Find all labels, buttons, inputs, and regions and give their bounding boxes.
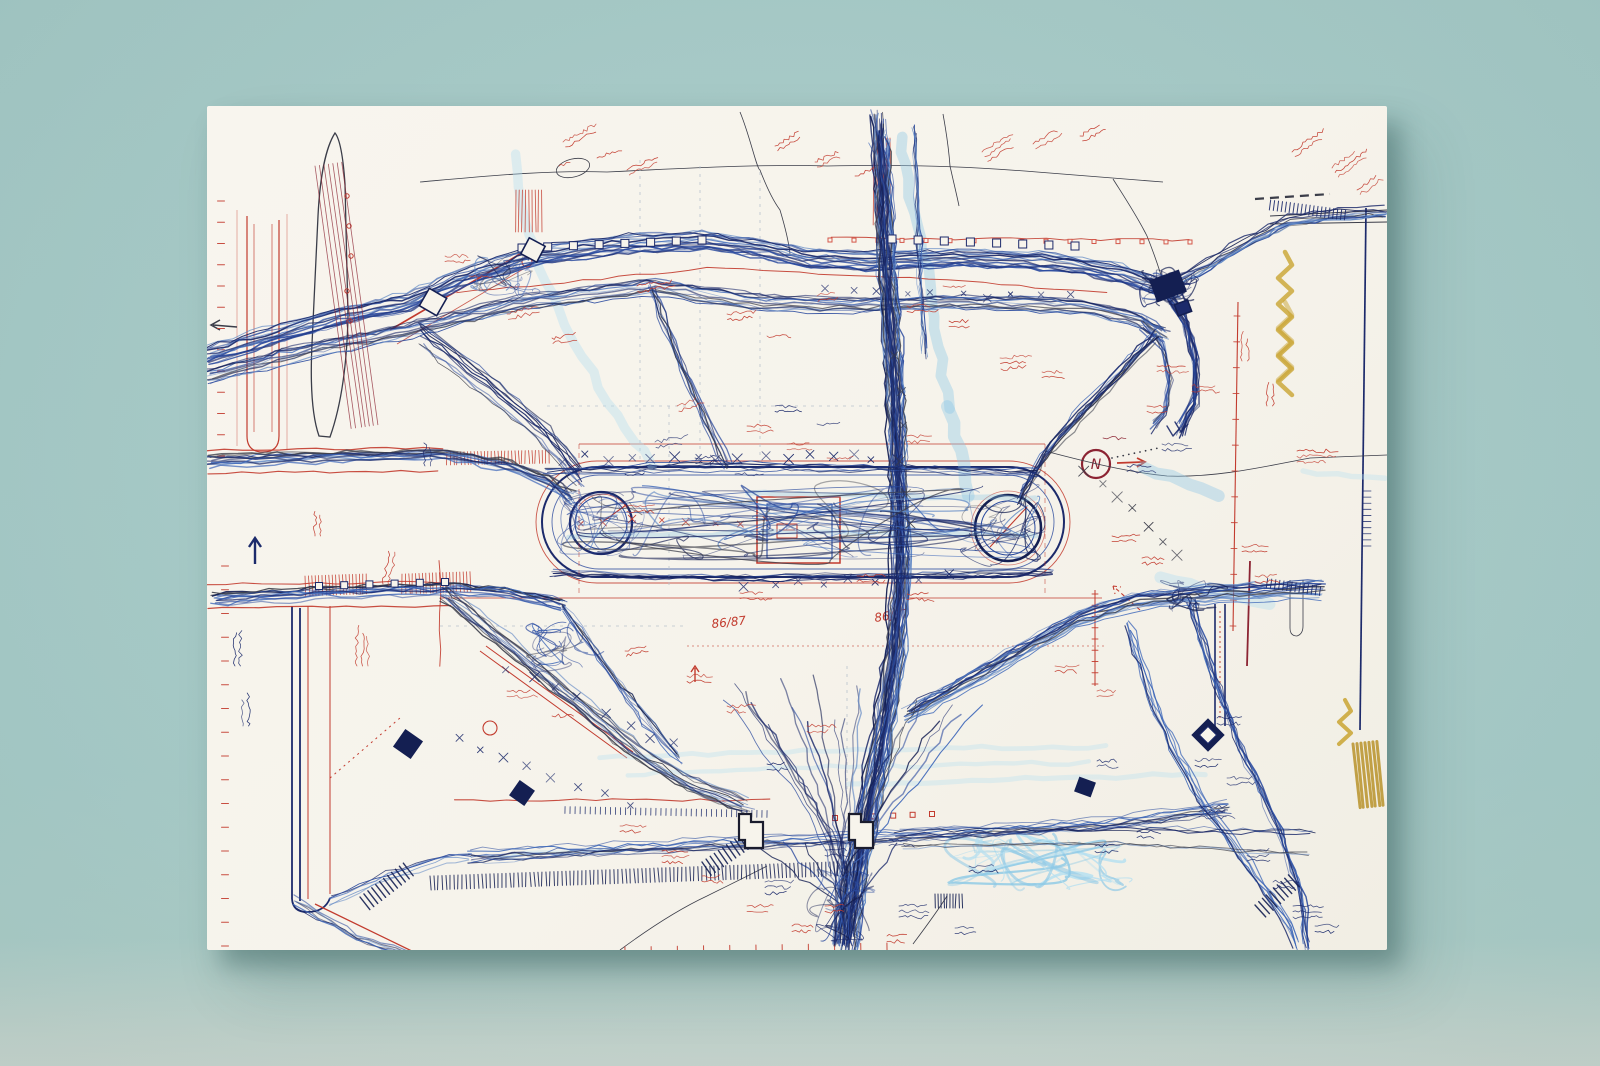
handwriting-scribble bbox=[1291, 128, 1328, 158]
ink-stroke bbox=[434, 876, 435, 890]
flow-line bbox=[420, 325, 582, 472]
x-mark bbox=[629, 454, 636, 461]
flow-line bbox=[563, 611, 682, 763]
flow-line bbox=[207, 280, 1162, 372]
ink-stroke bbox=[722, 866, 723, 880]
handwriting-scribble bbox=[1042, 370, 1064, 378]
ink-stroke bbox=[981, 132, 1013, 154]
handwriting-scribble bbox=[1297, 449, 1338, 463]
ink-stroke bbox=[698, 867, 699, 881]
ink-stroke bbox=[687, 680, 711, 683]
ink-stroke bbox=[1247, 854, 1269, 857]
ink-stroke bbox=[681, 867, 682, 881]
x-mark bbox=[873, 288, 880, 295]
handwriting-scribble bbox=[907, 592, 934, 601]
ink-stroke bbox=[907, 435, 932, 438]
ink-stroke bbox=[857, 580, 885, 583]
handwriting-scribble bbox=[943, 285, 965, 287]
handwriting-scribble bbox=[596, 148, 621, 160]
handwriting-scribble bbox=[1112, 534, 1140, 541]
flow-line bbox=[1166, 214, 1383, 294]
x-mark bbox=[851, 287, 857, 293]
ink-stroke bbox=[642, 869, 643, 883]
ink-stroke bbox=[529, 451, 530, 464]
kerb-tooth bbox=[930, 812, 935, 817]
x-mark bbox=[546, 774, 554, 782]
ink-stroke bbox=[1157, 370, 1189, 373]
x-mark bbox=[850, 450, 859, 459]
ink-stroke bbox=[655, 434, 689, 443]
x-mark bbox=[784, 454, 794, 464]
flow-line bbox=[564, 607, 677, 753]
ink-stroke bbox=[445, 254, 468, 257]
zigzag-mark bbox=[1278, 302, 1292, 380]
ink-stroke bbox=[1242, 545, 1268, 548]
ink-stroke bbox=[490, 874, 491, 888]
ink-stroke bbox=[749, 865, 750, 879]
kerb-tooth bbox=[852, 238, 856, 242]
ink-stroke bbox=[1297, 449, 1338, 453]
ink-stroke bbox=[727, 310, 756, 316]
ink-stroke bbox=[454, 875, 455, 889]
photo-backdrop: N 86/87 86/87 bbox=[0, 0, 1600, 1066]
flow-line bbox=[908, 598, 1321, 723]
ink-stroke bbox=[1097, 690, 1116, 693]
ink-stroke bbox=[1079, 124, 1100, 137]
tick-mark bbox=[1281, 202, 1282, 212]
highlighter-wash bbox=[947, 406, 968, 496]
ink-stroke bbox=[725, 866, 726, 880]
ink-stroke bbox=[747, 911, 768, 912]
ink-stroke bbox=[807, 730, 828, 733]
hatch-block bbox=[1353, 741, 1384, 807]
handwriting-scribble bbox=[747, 904, 773, 912]
ink-stroke bbox=[782, 864, 783, 878]
ink-stroke bbox=[1042, 370, 1062, 373]
ink-stroke bbox=[646, 868, 647, 882]
flow-line bbox=[1019, 339, 1154, 504]
handwriting-scribble bbox=[562, 123, 599, 149]
ink-stroke bbox=[775, 405, 796, 408]
ink-stroke bbox=[802, 863, 803, 877]
building-footprint bbox=[394, 730, 422, 758]
ink-stroke bbox=[907, 440, 930, 443]
ink-stroke bbox=[598, 870, 599, 884]
ink-stroke bbox=[955, 927, 974, 929]
handwriting-scribble bbox=[949, 319, 969, 328]
ink-stroke bbox=[546, 872, 547, 886]
ink-stroke bbox=[1242, 551, 1267, 552]
ink-stroke bbox=[1356, 175, 1377, 191]
ink-stroke bbox=[821, 862, 822, 876]
tick-mark bbox=[1301, 204, 1302, 214]
ink-stroke bbox=[1142, 557, 1164, 560]
x-mark bbox=[628, 803, 634, 809]
dotted-leader bbox=[1128, 454, 1130, 456]
tick-mark bbox=[1269, 200, 1270, 210]
tick-mark bbox=[1299, 583, 1300, 592]
ink-stroke bbox=[774, 131, 800, 148]
ink-stroke bbox=[1241, 331, 1244, 361]
handwriting-scribble bbox=[1097, 759, 1118, 768]
kerb-tooth bbox=[442, 579, 449, 586]
x-mark bbox=[1172, 550, 1182, 560]
ink-stroke bbox=[507, 695, 537, 699]
ink-stroke bbox=[946, 894, 947, 908]
ink-stroke bbox=[507, 690, 530, 693]
ink-stroke bbox=[1272, 384, 1275, 406]
ink-stroke bbox=[501, 873, 502, 887]
ink-stroke bbox=[355, 625, 359, 666]
kerb-tooth bbox=[993, 239, 1001, 247]
x-mark bbox=[646, 734, 655, 743]
ink-stroke bbox=[1157, 365, 1185, 367]
ink-stroke bbox=[899, 915, 928, 919]
dotted-leader bbox=[1139, 451, 1141, 453]
ink-stroke bbox=[662, 868, 663, 882]
ink-stroke bbox=[814, 150, 838, 164]
dotted-leader bbox=[1111, 457, 1113, 459]
ink-stroke bbox=[1315, 930, 1334, 933]
handwriting-scribble bbox=[1242, 545, 1268, 553]
ink-stroke bbox=[1331, 150, 1356, 169]
ink-stroke bbox=[955, 932, 976, 935]
ink-stroke bbox=[610, 870, 611, 884]
ink-stroke bbox=[1112, 540, 1136, 542]
flow-line bbox=[210, 279, 1165, 375]
ink-stroke bbox=[775, 410, 802, 412]
kerb-tooth bbox=[647, 238, 655, 246]
ink-stroke bbox=[539, 450, 540, 463]
year-annotation-left: 86/87 bbox=[711, 613, 747, 631]
x-mark bbox=[906, 292, 910, 296]
ink-stroke bbox=[1227, 776, 1252, 779]
ink-stroke bbox=[319, 165, 357, 428]
ink-stroke bbox=[525, 451, 526, 464]
highlighter-wash bbox=[901, 137, 950, 409]
ink-stroke bbox=[538, 872, 539, 886]
ink-stroke bbox=[626, 869, 627, 883]
ink-stroke bbox=[662, 861, 683, 864]
dotted-leader bbox=[1122, 455, 1124, 457]
handwriting-scribble bbox=[767, 335, 791, 338]
handwriting-scribble bbox=[1032, 127, 1063, 150]
x-mark bbox=[582, 451, 588, 457]
kerb-tooth bbox=[924, 239, 928, 243]
compass-north-icon: N bbox=[1082, 450, 1145, 478]
ink-stroke bbox=[506, 873, 507, 887]
ink-stroke bbox=[1162, 443, 1188, 446]
ink-stroke bbox=[466, 875, 467, 889]
x-mark bbox=[660, 518, 665, 523]
kerb-tooth bbox=[1188, 240, 1192, 244]
ink-stroke bbox=[314, 166, 352, 429]
ink-stroke bbox=[470, 875, 471, 889]
ink-stroke bbox=[593, 870, 594, 884]
ink-stroke bbox=[411, 574, 413, 594]
ink-stroke bbox=[673, 867, 674, 881]
ink-stroke bbox=[949, 326, 969, 328]
flow-line bbox=[655, 287, 727, 463]
kerb-tooth bbox=[1116, 240, 1120, 244]
hatch-block bbox=[314, 162, 378, 428]
ink-stroke bbox=[474, 874, 475, 888]
ink-stroke bbox=[741, 865, 742, 879]
ink-stroke bbox=[1112, 534, 1140, 538]
x-mark bbox=[1112, 492, 1122, 502]
kerb-tooth bbox=[1092, 240, 1096, 244]
dotted-leader bbox=[1117, 456, 1119, 458]
building-footprint bbox=[1075, 778, 1095, 797]
handwriting-scribble bbox=[740, 592, 772, 600]
ink-stroke bbox=[332, 163, 369, 425]
ink-stroke bbox=[630, 869, 631, 883]
ink-stroke bbox=[525, 873, 526, 887]
kerb-tooth bbox=[888, 235, 896, 243]
ink-stroke bbox=[774, 864, 775, 878]
x-mark bbox=[1008, 292, 1012, 296]
handwriting-scribble bbox=[765, 880, 794, 895]
ink-stroke bbox=[247, 693, 250, 726]
ink-stroke bbox=[1147, 405, 1166, 407]
tick-mark bbox=[1289, 203, 1290, 213]
ink-stroke bbox=[730, 866, 731, 880]
flow-line bbox=[735, 684, 846, 942]
ink-stroke bbox=[1137, 830, 1161, 834]
ink-stroke bbox=[740, 592, 763, 595]
ink-stroke bbox=[810, 863, 811, 877]
kerb-tooth bbox=[1071, 242, 1079, 250]
flow-line bbox=[420, 345, 581, 487]
handwriting-scribble bbox=[1055, 665, 1079, 673]
x-mark bbox=[670, 739, 678, 747]
ink-stroke bbox=[853, 861, 854, 875]
ink-stroke bbox=[529, 190, 530, 232]
ink-stroke bbox=[1000, 360, 1025, 365]
kerb-tooth bbox=[1164, 240, 1168, 244]
ink-stroke bbox=[767, 335, 791, 338]
ink-stroke bbox=[758, 865, 759, 879]
x-mark bbox=[602, 790, 609, 797]
handwriting-scribble bbox=[1162, 443, 1192, 451]
x-mark bbox=[1160, 539, 1166, 545]
ink-stroke bbox=[1255, 574, 1277, 577]
tick-mark bbox=[1313, 206, 1314, 216]
right-red-column bbox=[1095, 302, 1250, 686]
handwriting-scribble bbox=[854, 167, 875, 177]
ink-stroke bbox=[513, 873, 514, 887]
handwriting-scribble bbox=[1000, 354, 1033, 371]
x-mark bbox=[499, 753, 508, 762]
flow-line bbox=[781, 679, 838, 944]
ink-stroke bbox=[1082, 128, 1106, 142]
flow-line bbox=[441, 596, 742, 807]
ink-stroke bbox=[627, 505, 655, 507]
ink-stroke bbox=[585, 871, 586, 885]
ink-stroke bbox=[1103, 437, 1126, 440]
ink-stroke bbox=[1097, 695, 1113, 697]
ink-stroke bbox=[790, 863, 791, 877]
ink-stroke bbox=[818, 862, 819, 876]
ink-stroke bbox=[409, 574, 410, 594]
yellow-highlighter-marks bbox=[1278, 252, 1384, 808]
ink-stroke bbox=[478, 874, 479, 888]
ink-stroke bbox=[534, 872, 535, 886]
kerb-tooth bbox=[698, 236, 706, 244]
ink-stroke bbox=[943, 285, 965, 287]
ink-stroke bbox=[577, 871, 578, 885]
kerb-tooth bbox=[910, 812, 915, 817]
ink-stroke bbox=[535, 190, 536, 232]
ink-stroke bbox=[239, 631, 243, 666]
handwriting-scribble bbox=[445, 254, 470, 263]
ink-stroke bbox=[778, 864, 779, 878]
ink-stroke bbox=[770, 864, 771, 878]
ink-stroke bbox=[650, 868, 651, 882]
ink-stroke bbox=[518, 451, 519, 464]
hatch-block bbox=[935, 894, 963, 908]
x-mark bbox=[1067, 291, 1073, 297]
x-mark bbox=[575, 784, 582, 791]
ink-stroke bbox=[549, 872, 550, 886]
x-mark bbox=[477, 747, 483, 753]
ink-stroke bbox=[366, 636, 369, 666]
kerb-tooth bbox=[341, 582, 348, 589]
ink-stroke bbox=[437, 876, 438, 890]
dotted-leader bbox=[1156, 448, 1158, 450]
ink-stroke bbox=[1195, 764, 1218, 767]
ink-stroke bbox=[573, 871, 574, 885]
handwriting-scribble bbox=[1331, 144, 1371, 178]
ink-stroke bbox=[805, 863, 806, 877]
ink-stroke bbox=[670, 868, 671, 882]
ink-stroke bbox=[602, 870, 603, 884]
dotted-leader bbox=[1134, 452, 1136, 454]
ink-stroke bbox=[494, 874, 495, 888]
handwriting-scribble bbox=[355, 625, 369, 666]
ink-stroke bbox=[445, 260, 470, 263]
ink-stroke bbox=[497, 874, 498, 888]
ink-stroke bbox=[817, 422, 840, 425]
ink-stroke bbox=[701, 867, 702, 881]
ink-stroke bbox=[690, 867, 691, 881]
tick-mark bbox=[1266, 579, 1267, 588]
flow-line bbox=[1167, 214, 1388, 294]
flow-line bbox=[295, 901, 421, 950]
ink-stroke bbox=[1162, 448, 1192, 451]
tick-mark bbox=[1293, 203, 1294, 213]
x-mark bbox=[806, 450, 814, 458]
flow-line bbox=[1188, 597, 1304, 944]
tick-mark bbox=[1297, 204, 1298, 214]
x-mark bbox=[456, 734, 463, 741]
kerb-tooth bbox=[391, 580, 398, 587]
ink-stroke bbox=[762, 864, 763, 878]
handwriting-scribble bbox=[1137, 830, 1161, 838]
x-mark bbox=[822, 285, 829, 292]
flow-line bbox=[911, 592, 1322, 719]
paper-sheet: N 86/87 86/87 bbox=[207, 106, 1387, 950]
kerb-tooth bbox=[416, 579, 423, 586]
oval-callout bbox=[554, 155, 591, 181]
ink-stroke bbox=[620, 825, 646, 828]
kerb-tooth bbox=[316, 583, 323, 590]
right-edge-line bbox=[1360, 208, 1366, 730]
ink-stroke bbox=[899, 904, 927, 907]
flow-line bbox=[653, 289, 733, 464]
handwriting-scribble bbox=[233, 631, 242, 666]
ink-stroke bbox=[1000, 354, 1032, 360]
ink-stroke bbox=[629, 161, 658, 177]
kerb-tooth bbox=[940, 237, 948, 245]
ink-stroke bbox=[486, 874, 487, 888]
ink-stroke bbox=[734, 865, 735, 879]
handwriting-scribble bbox=[1097, 690, 1116, 697]
handwriting-scribble bbox=[626, 155, 660, 177]
highlighter-wash bbox=[1303, 471, 1385, 478]
ink-stroke bbox=[430, 876, 431, 890]
x-mark bbox=[627, 722, 635, 730]
kerb-tooth bbox=[672, 237, 680, 245]
ink-stroke bbox=[654, 868, 655, 882]
ink-stroke bbox=[208, 471, 438, 474]
ink-stroke bbox=[662, 855, 689, 858]
handwriting-scribble bbox=[1157, 365, 1189, 373]
dotted-leader bbox=[1150, 449, 1152, 451]
ink-stroke bbox=[747, 904, 773, 907]
kerb-tooth bbox=[366, 581, 373, 588]
flow-line bbox=[1125, 626, 1293, 948]
flow-line bbox=[294, 895, 419, 950]
kerb-tooth bbox=[966, 238, 974, 246]
ink-stroke bbox=[570, 871, 571, 885]
ink-stroke bbox=[907, 592, 928, 595]
flow-line bbox=[905, 593, 1321, 720]
ink-stroke bbox=[457, 875, 458, 889]
ink-stroke bbox=[765, 880, 794, 883]
ink-stroke bbox=[1042, 376, 1064, 378]
ink-stroke bbox=[1227, 782, 1255, 786]
highlighter-wash bbox=[849, 774, 1206, 785]
ink-stroke bbox=[521, 451, 522, 464]
ink-stroke bbox=[566, 871, 567, 885]
ink-stroke bbox=[817, 291, 835, 296]
hatch-block bbox=[430, 861, 858, 890]
handwriting-scribble bbox=[774, 131, 802, 152]
x-mark bbox=[868, 457, 874, 463]
handwriting-scribble bbox=[792, 924, 813, 933]
ink-stroke bbox=[798, 863, 799, 877]
ink-stroke bbox=[541, 872, 542, 886]
ink-stroke bbox=[792, 924, 813, 927]
tick-mark bbox=[1273, 201, 1274, 211]
ink-stroke bbox=[1195, 758, 1221, 761]
ink-stroke bbox=[361, 633, 364, 666]
ink-stroke bbox=[620, 830, 641, 833]
handwriting-scribble bbox=[620, 825, 646, 834]
handwriting-scribble bbox=[1241, 331, 1250, 361]
handwriting-scribble bbox=[807, 724, 836, 733]
ink-stroke bbox=[1337, 156, 1366, 178]
ink-stroke bbox=[1315, 924, 1339, 927]
handwriting-scribble bbox=[1315, 924, 1339, 933]
ink-stroke bbox=[1142, 562, 1163, 565]
flow-line bbox=[1023, 343, 1155, 506]
kerb-tooth bbox=[595, 241, 603, 249]
ink-stroke bbox=[792, 930, 810, 933]
handwriting-scribble bbox=[241, 693, 250, 726]
sketch-drawing: N 86/87 86/87 bbox=[207, 106, 1387, 950]
